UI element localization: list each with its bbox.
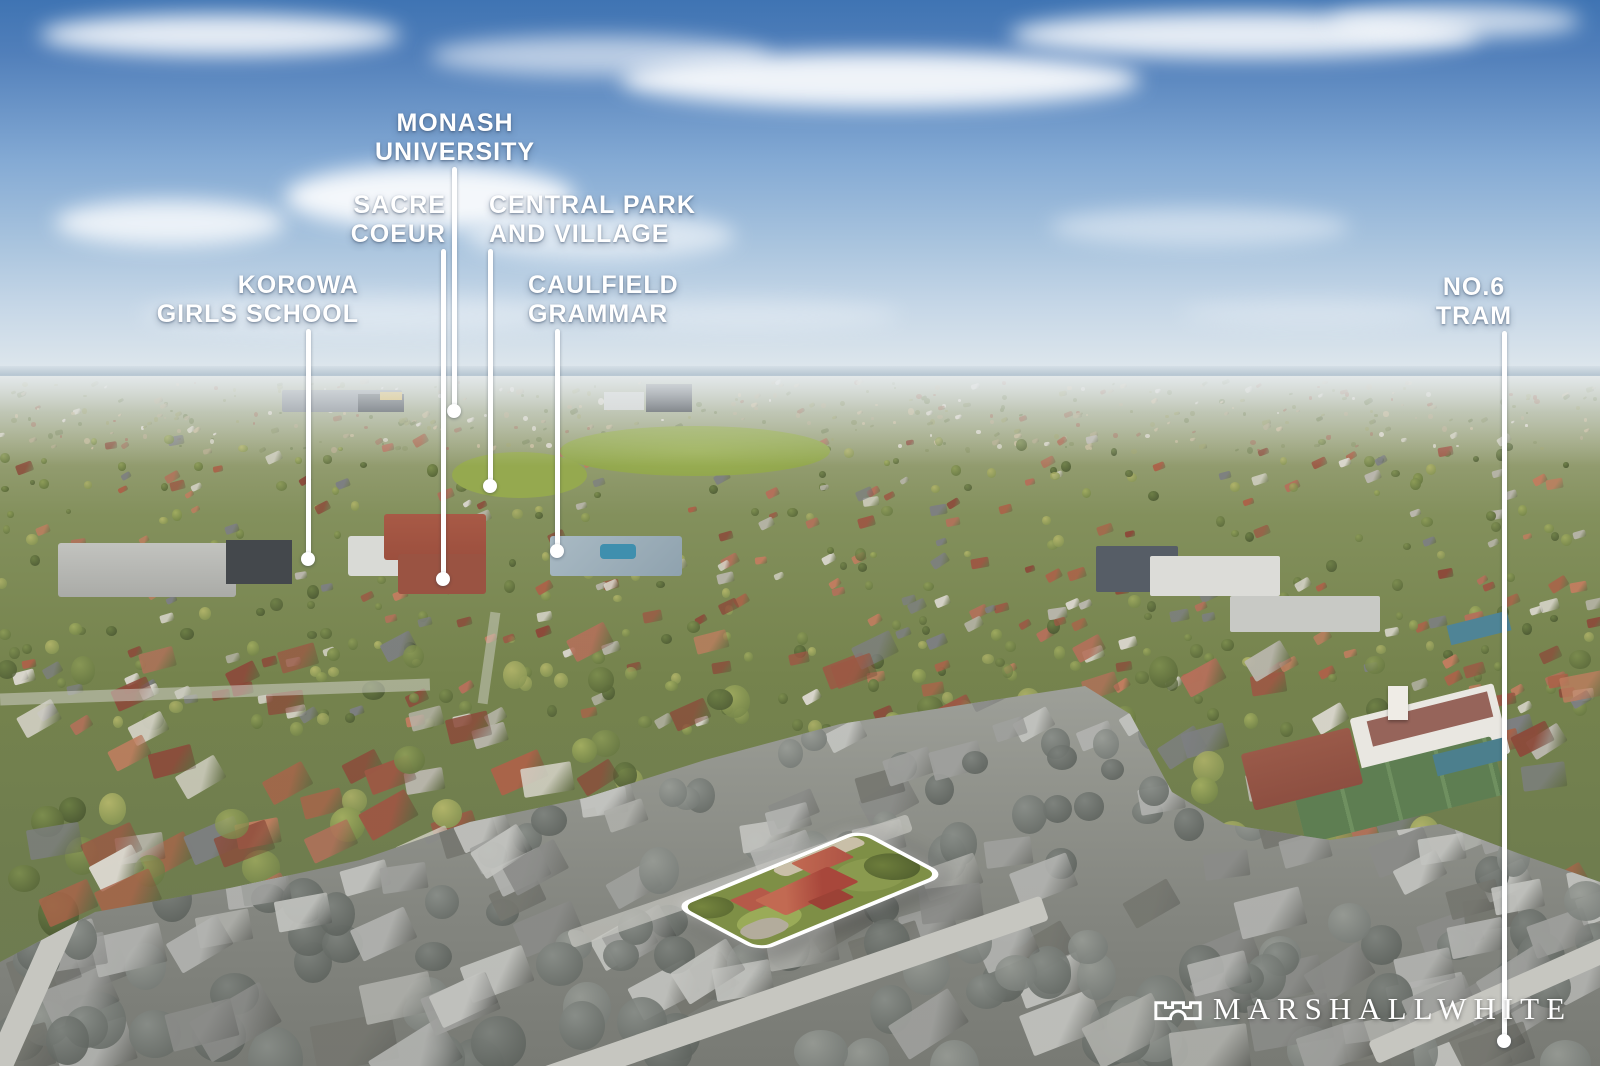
- sacre-coeur-pointer-dot: [436, 572, 450, 586]
- korowa-girls-school-pointer-line: [306, 329, 311, 555]
- monash-university-label: MONASH UNIVERSITY: [375, 109, 535, 167]
- monash-university-pointer-dot: [447, 404, 461, 418]
- brand-logo: MARSHALLWHITE: [1153, 993, 1572, 1024]
- monash-university-pointer-line: [452, 167, 457, 407]
- korowa-girls-school-label: KOROWA GIRLS SCHOOL: [157, 271, 359, 329]
- annotations-layer: MONASH UNIVERSITYSACRE COEURCENTRAL PARK…: [0, 0, 1600, 1066]
- no6-tram-pointer-line: [1502, 331, 1507, 1037]
- sacre-coeur-label: SACRE COEUR: [351, 191, 446, 249]
- sacre-coeur-pointer-line: [441, 249, 446, 575]
- aerial-photo: MONASH UNIVERSITYSACRE COEURCENTRAL PARK…: [0, 0, 1600, 1066]
- korowa-girls-school-pointer-dot: [301, 552, 315, 566]
- central-park-and-village-label: CENTRAL PARK AND VILLAGE: [489, 191, 696, 249]
- brand-name: MARSHALLWHITE: [1213, 993, 1572, 1024]
- castle-icon: [1153, 997, 1203, 1021]
- central-park-and-village-pointer-dot: [483, 479, 497, 493]
- no6-tram-label: NO.6 TRAM: [1436, 273, 1512, 331]
- caulfield-grammar-pointer-line: [555, 329, 560, 547]
- central-park-and-village-pointer-line: [488, 249, 493, 482]
- no6-tram-pointer-dot: [1497, 1034, 1511, 1048]
- caulfield-grammar-label: CAULFIELD GRAMMAR: [528, 271, 679, 329]
- caulfield-grammar-pointer-dot: [550, 544, 564, 558]
